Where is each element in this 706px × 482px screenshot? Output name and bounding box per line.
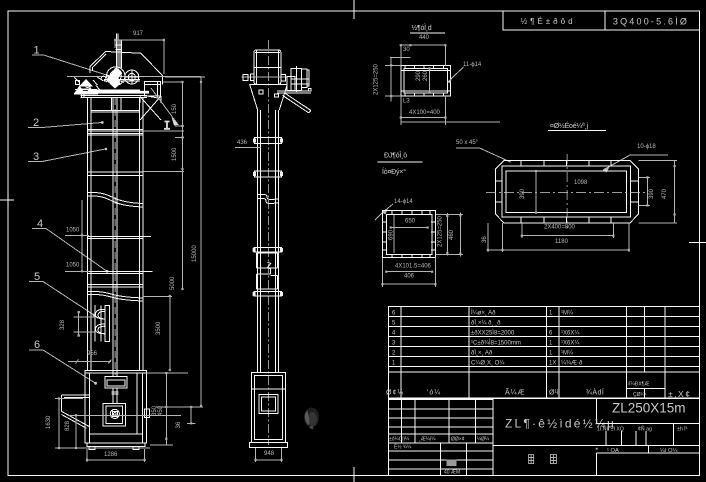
- svg-text:C¼Ø¸X¸ O¼: C¼Ø¸X¸ O¼: [471, 361, 505, 367]
- svg-text:1050: 1050: [66, 228, 80, 234]
- svg-text:2X125=250: 2X125=250: [438, 215, 444, 247]
- svg-text:460: 460: [449, 229, 455, 240]
- svg-text:¹X6X¼: ¹X6X¼: [561, 341, 580, 347]
- svg-text:4X101.5=406: 4X101.5=406: [395, 264, 432, 270]
- svg-text:3500: 3500: [156, 321, 162, 335]
- svg-text:30: 30: [403, 47, 410, 53]
- svg-text:14-ϕ14: 14-ϕ14: [394, 199, 413, 205]
- svg-text:Ã¼Æ: Ã¼Æ: [505, 388, 526, 397]
- svg-text:1Ï ÑL ±I XQ: 1Ï ÑL ±I XQ: [597, 426, 624, 433]
- svg-text:828: 828: [65, 420, 71, 431]
- svg-text:406: 406: [404, 274, 415, 280]
- svg-text:Ø¹ì: Ø¹ì: [549, 390, 559, 397]
- svg-text:¤Ø½Éoé¼ª¸j: ¤Ø½Éoé¼ª¸j: [550, 121, 589, 130]
- svg-text:±ðXX25Ì8=2000: ±ðXX25Ì8=2000: [471, 330, 515, 337]
- svg-text:¼Ø¼: ¼Ø¼: [477, 437, 490, 443]
- svg-text:ÐJ¶óÌ¸ò: ÐJ¶óÌ¸ò: [384, 151, 407, 160]
- svg-text:1X: 1X: [549, 361, 556, 367]
- svg-text:¹Ï¼ÐX¶Æ: ¹Ï¼ÐX¶Æ: [628, 381, 650, 388]
- svg-text:3Q400-5.6ÌØ: 3Q400-5.6ÌØ: [613, 17, 689, 27]
- svg-text:948: 948: [264, 451, 275, 457]
- svg-text:¹X6X¼: ¹X6X¼: [561, 331, 580, 337]
- svg-text:¼ì O¼: ¼ì O¼: [660, 448, 678, 454]
- svg-text:436: 436: [237, 140, 248, 146]
- svg-text:¹M¼: ¹M¼: [561, 311, 574, 317]
- svg-text:¢Ñ ag: ¢Ñ ag: [638, 426, 652, 433]
- svg-text:6: 6: [34, 339, 40, 351]
- svg-text:260: 260: [423, 70, 429, 81]
- svg-text:150: 150: [172, 103, 178, 114]
- svg-text:2X125=250: 2X125=250: [374, 63, 380, 95]
- svg-text:¹ OA: ¹ OA: [607, 448, 619, 454]
- svg-text:¼¾Æ·ð: ¼¾Æ·ð: [561, 360, 583, 367]
- svg-text:36: 36: [482, 236, 488, 243]
- svg-text:È½ ¾¼: È½ ¾¼: [394, 444, 412, 451]
- svg-text:ðÏ¸×¸ Að: ðÏ¸×¸ Að: [471, 350, 493, 357]
- svg-text:4X100=400: 4X100=400: [409, 110, 441, 116]
- svg-text:ÇØ¼¹: ÇØ¼¹: [633, 392, 647, 398]
- svg-text:390: 390: [649, 188, 655, 199]
- svg-text:¹M¼: ¹M¼: [561, 351, 574, 357]
- svg-text:Ø¢¼: Ø¢¼: [386, 390, 404, 397]
- svg-text:2X400=800: 2X400=800: [544, 225, 576, 231]
- svg-text:ðÏ¸×¼ ð¸ ¸ð: ðÏ¸×¼ ð¸ ¸ð: [471, 320, 501, 327]
- svg-text:11-ϕ14: 11-ϕ14: [463, 62, 482, 68]
- svg-text:36: 36: [176, 421, 182, 428]
- svg-text:±ð¼C|ì¼: ±ð¼C|ì¼: [389, 436, 410, 443]
- svg-text:40 ÆM: 40 ÆM: [444, 470, 460, 476]
- svg-text:328: 328: [60, 319, 66, 330]
- svg-text:½¶óÌ¸d: ½¶óÌ¸d: [412, 23, 432, 32]
- svg-text:470: 470: [662, 188, 668, 199]
- svg-text:'ó¼: 'ó¼: [427, 390, 441, 397]
- svg-text:L3: L3: [403, 99, 410, 105]
- svg-text:15000: 15000: [192, 245, 198, 262]
- svg-text:ØØ×¢: ØØ×¢: [451, 437, 465, 443]
- svg-text:¸Æ¼ì¼: ¸Æ¼ì¼: [419, 437, 436, 443]
- svg-text:1630: 1630: [46, 415, 52, 429]
- svg-text:±h Ï¹: ±h Ï¹: [677, 426, 688, 433]
- svg-text:390: 390: [520, 188, 526, 199]
- svg-text:290: 290: [416, 70, 422, 81]
- svg-text:Íò¤Ðý×°: Íò¤Ðý×°: [382, 167, 406, 176]
- svg-text:1050: 1050: [66, 263, 80, 269]
- svg-text:917: 917: [133, 31, 144, 37]
- svg-text:¾ÀdÏ: ¾ÀdÏ: [586, 388, 604, 397]
- svg-text:450: 450: [158, 405, 164, 416]
- svg-text:440: 440: [419, 35, 430, 41]
- svg-text:50 x 45°: 50 x 45°: [456, 140, 479, 146]
- svg-text:1098: 1098: [574, 180, 588, 186]
- svg-text:650: 650: [405, 219, 416, 225]
- svg-text:½¶É±ðôd: ½¶É±ðôd: [520, 17, 575, 26]
- svg-text:5000: 5000: [170, 276, 176, 290]
- svg-text:10-ϕ18: 10-ϕ18: [637, 144, 656, 150]
- svg-text:1286: 1286: [104, 452, 118, 458]
- svg-text:¹C±ð¾Ì8=1500mm: ¹C±ð¾Ì8=1500mm: [471, 340, 521, 347]
- svg-text:Ì¼ø×¸ Að: Ì¼ø×¸ Að: [471, 310, 496, 317]
- svg-text:1180: 1180: [555, 239, 569, 245]
- svg-text:956: 956: [87, 351, 98, 357]
- svg-text:ZL250X15m: ZL250X15m: [612, 401, 686, 416]
- svg-text:1500: 1500: [172, 147, 178, 161]
